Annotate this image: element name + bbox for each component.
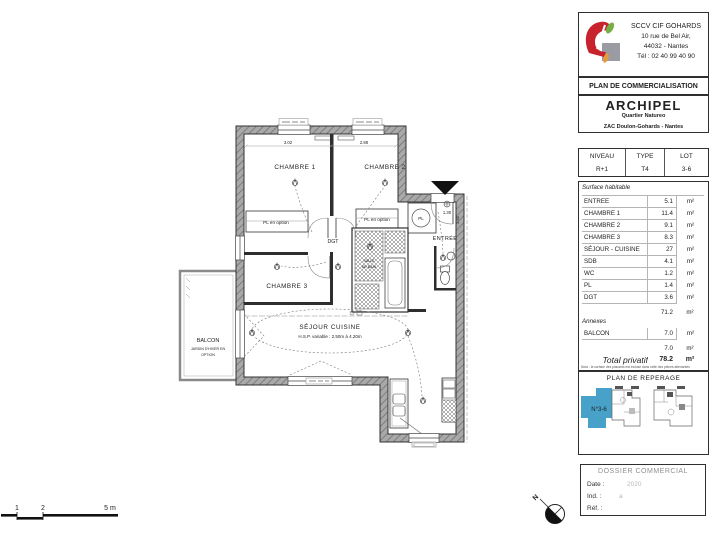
sink: [393, 406, 405, 416]
table-row: ENTREE5.1m²: [582, 196, 706, 208]
company-name: SCCV CIF GOHARDS: [625, 22, 707, 32]
room-label-dgt: DGT: [328, 239, 340, 245]
company-phone: Tél : 02 40 99 40 90: [625, 52, 707, 62]
kitchen: [390, 378, 456, 434]
room-label-sejour: SÉJOUR CUISINE: [299, 322, 360, 331]
bathroom-block: [352, 228, 408, 312]
reperage-map: N°3-6: [579, 384, 708, 454]
dossier-box: DOSSIER COMMERCIAL Date : 2020 Ind. : a …: [580, 464, 706, 516]
north-arrow-icon: N: [532, 494, 565, 524]
label-pl-entry: PL: [418, 216, 424, 221]
dossier-date-label: Date :: [587, 481, 604, 488]
door-width-symbol: [444, 201, 450, 207]
balcony: [180, 271, 237, 380]
dossier-title: DOSSIER COMMERCIAL: [581, 468, 705, 475]
lot-value-type: T4: [625, 163, 664, 176]
project-name: ARCHIPEL: [579, 98, 708, 113]
section-annexes: Annexes: [582, 318, 606, 325]
room-label-chambre3: CHAMBRE 3: [266, 283, 307, 290]
scale-bar: 1 2 5 m: [1, 505, 118, 520]
room-label-balcon: BALCON: [197, 338, 220, 344]
section-surface-habitable: Surface habitable: [582, 184, 704, 196]
lot-value-niveau: R+1: [579, 163, 625, 176]
label-sdb-2: DE BAIN: [362, 265, 377, 269]
room-label-chambre2: CHAMBRE 2: [364, 164, 405, 171]
dim-entry: 1.30: [443, 210, 452, 215]
company-address-2: 44032 - Nantes: [625, 42, 707, 52]
table-row: CHAMBRE 38.3m²: [582, 232, 706, 244]
company-logo-icon: [583, 19, 623, 67]
label-balcon-option1: JARDIN D'HIVER EN: [191, 347, 226, 351]
reperage-thumbnail: [612, 386, 640, 426]
north-label: N: [532, 494, 541, 503]
reperage-title: PLAN DE REPERAGE: [579, 375, 708, 382]
dim-chambre2: 2.88: [360, 140, 369, 145]
dim-chambre1: 3.02: [284, 140, 293, 145]
lot-header-type: TYPE: [625, 149, 664, 163]
company-address-1: 10 rue de Bel Air,: [625, 32, 707, 42]
entrance-marker-icon: [431, 181, 459, 195]
project-subtitle: Quartier Natureo: [579, 113, 708, 119]
table-row: BALCON7.0m²: [582, 328, 706, 340]
commercialisation-title: PLAN DE COMMERCIALISATION: [578, 77, 709, 95]
room-label-entree: ENTRÉE: [433, 235, 458, 242]
table-row: SDB4.1m²: [582, 256, 706, 268]
project-box: ARCHIPEL Quartier Natureo ZAC Doulon-Goh…: [578, 95, 709, 133]
table-row: SÉJOUR - CUISINE27m²: [582, 244, 706, 256]
label-hsp: H.S.P. variable : 2.50m à 4.20m: [298, 334, 361, 339]
dossier-date-value: 2020: [627, 481, 641, 488]
table-row: PL1.4m²: [582, 280, 706, 292]
reperage-box: PLAN DE REPERAGE N°3-6: [578, 371, 709, 455]
reperage-thumbnail: [654, 386, 692, 426]
lot-table: NIVEAU TYPE LOT R+1 T4 3-6: [578, 148, 709, 177]
label-pl-right: PL en option: [364, 217, 390, 222]
label-sdb-1: SALLE: [363, 259, 375, 263]
label-balcon-option2: OPTION: [201, 353, 215, 357]
surface-table: Surface habitable ENTREE5.1m² CHAMBRE 11…: [578, 181, 709, 371]
lot-header-lot: LOT: [664, 149, 708, 163]
room-label-chambre1: CHAMBRE 1: [274, 164, 315, 171]
sink: [393, 394, 405, 404]
dossier-ref-label: Réf. :: [587, 505, 603, 512]
dossier-ind-label: Ind. :: [587, 493, 601, 500]
table-row: WC1.2m²: [582, 268, 706, 280]
scale-tick-5m: 5 m: [104, 505, 116, 512]
table-note: Nota : la surface des placards est inclu…: [581, 365, 708, 369]
company-box: SCCV CIF GOHARDS 10 rue de Bel Air, 4403…: [578, 12, 709, 77]
scale-tick-1: 1: [15, 505, 19, 512]
page: CHAMBRE 1 CHAMBRE 2 CHAMBRE 3 DGT ENTRÉE…: [0, 0, 720, 540]
dossier-ind-value: a: [619, 493, 623, 500]
label-pl-left: PL en option: [263, 220, 289, 225]
project-location: ZAC Doulon-Gohards - Nantes: [579, 124, 708, 130]
scale-tick-2: 2: [41, 505, 45, 512]
lot-header-niveau: NIVEAU: [579, 149, 625, 163]
table-row: DGT3.6m²: [582, 292, 706, 304]
table-row: CHAMBRE 111.4m²: [582, 208, 706, 220]
lot-value-lot: 3-6: [664, 163, 708, 176]
highlighted-lot-label: N°3-6: [591, 407, 607, 413]
dim-entry-v: 1.90: [455, 215, 460, 224]
table-row: CHAMBRE 29.1m²: [582, 220, 706, 232]
